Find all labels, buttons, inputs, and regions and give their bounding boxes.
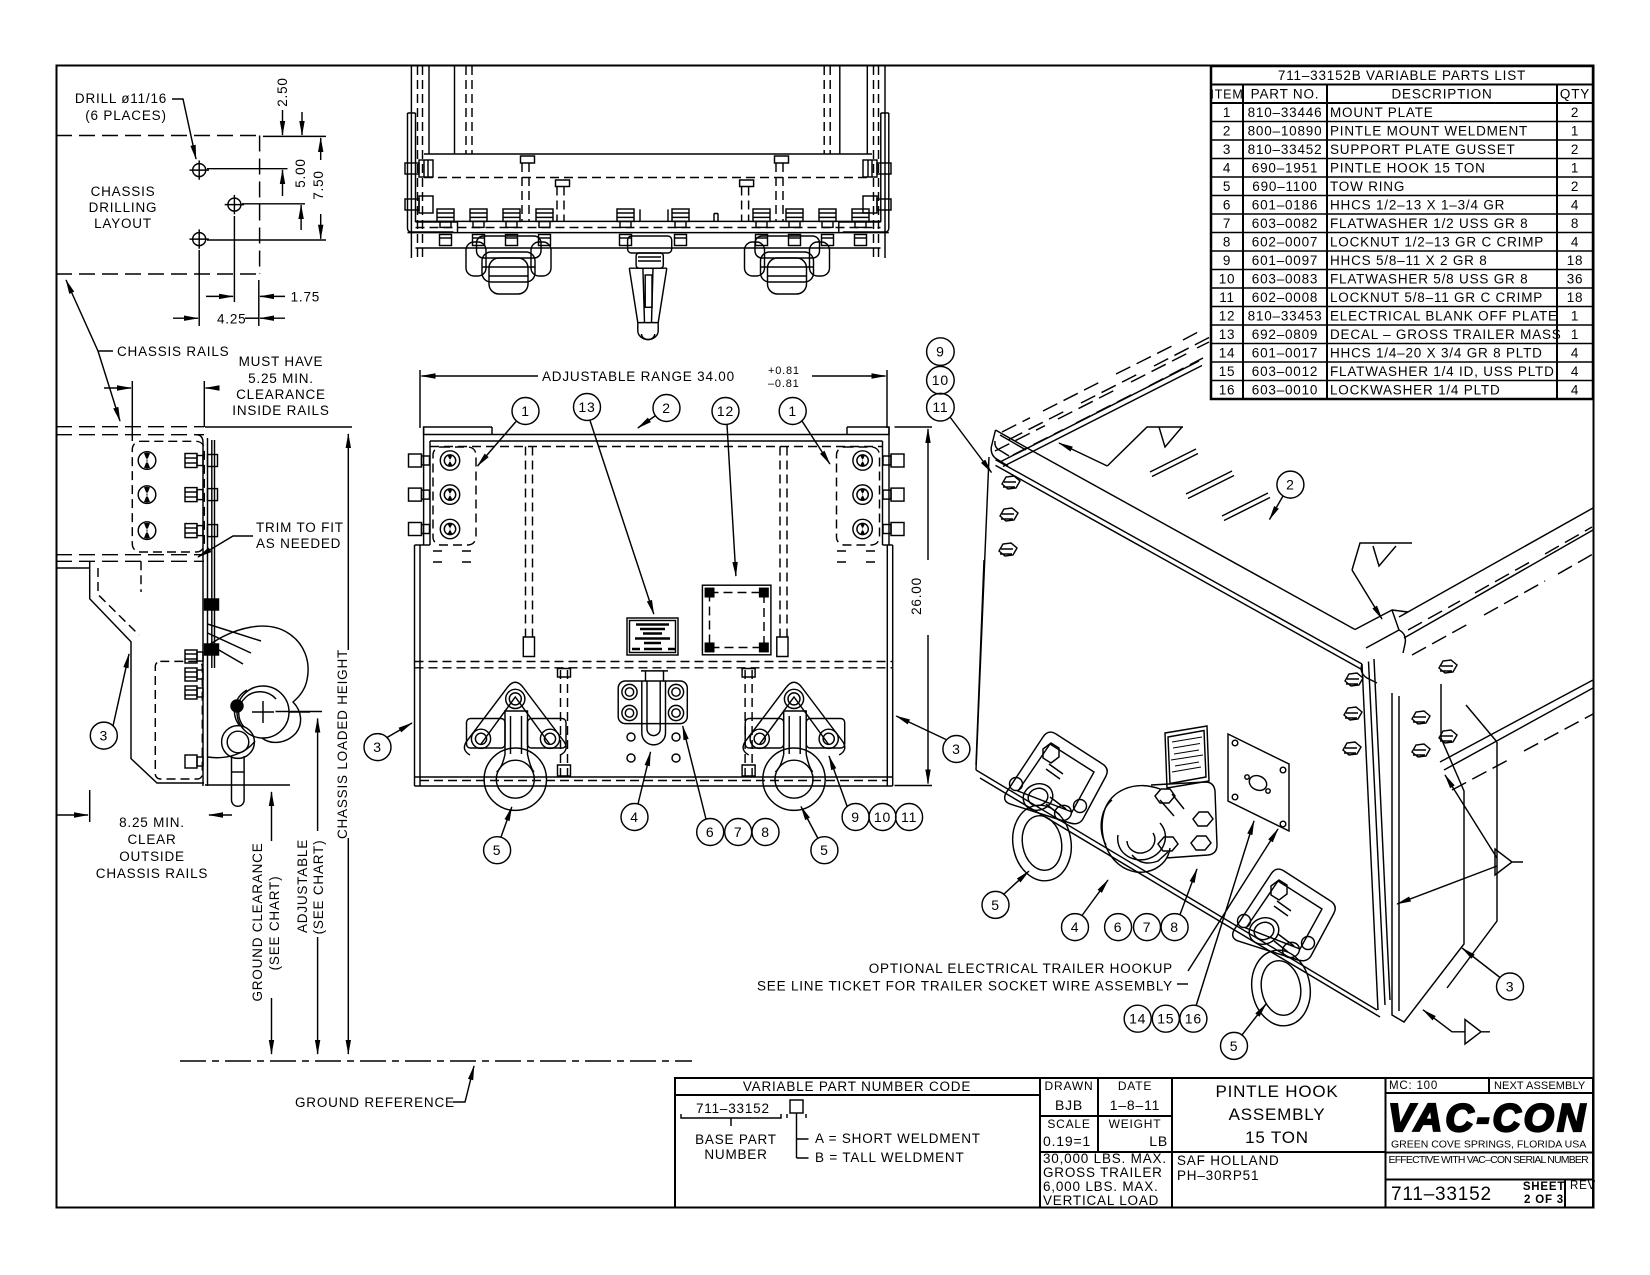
svg-text:6: 6 [706,824,715,840]
svg-text:B = TALL WELDMENT: B = TALL WELDMENT [815,1150,965,1165]
svg-text:2 OF 3: 2 OF 3 [1524,1194,1564,1206]
svg-text:VAC-CON: VAC-CON [1388,1097,1586,1140]
svg-text:14: 14 [1219,346,1236,361]
svg-text:DRILL ø11/16: DRILL ø11/16 [75,91,167,106]
svg-text:16: 16 [1185,1011,1202,1027]
svg-text:1: 1 [1571,309,1579,324]
svg-text:ASSEMBLY: ASSEMBLY [1229,1105,1326,1124]
svg-text:FLATWASHER 1/2 USS GR 8: FLATWASHER 1/2 USS GR 8 [1330,216,1528,231]
svg-text:690–1951: 690–1951 [1252,161,1318,176]
svg-text:810–33453: 810–33453 [1248,309,1323,324]
svg-text:810–33446: 810–33446 [1248,105,1323,120]
svg-text:TRIM TO FIT: TRIM TO FIT [256,520,344,535]
svg-text:4: 4 [1571,235,1579,250]
svg-text:AS NEEDED: AS NEEDED [256,536,341,551]
svg-text:4: 4 [1571,364,1579,379]
svg-text:30,000 LBS. MAX.: 30,000 LBS. MAX. [1043,1151,1167,1166]
svg-text:3: 3 [373,739,382,755]
svg-text:2: 2 [1571,105,1579,120]
svg-text:1–8–11: 1–8–11 [1110,1097,1160,1113]
svg-text:1: 1 [788,403,797,419]
svg-text:5: 5 [1230,1038,1239,1054]
svg-text:LB: LB [1149,1133,1168,1149]
svg-text:8: 8 [1223,235,1231,250]
svg-text:10: 10 [1219,272,1236,287]
svg-text:NUMBER: NUMBER [704,1147,767,1162]
svg-text:ADJUSTABLE: ADJUSTABLE [295,839,310,933]
svg-text:601–0017: 601–0017 [1252,346,1318,361]
svg-text:5.00: 5.00 [293,158,308,187]
svg-text:2: 2 [1286,477,1295,493]
svg-text:8: 8 [1170,919,1179,935]
svg-text:3: 3 [100,728,109,744]
svg-text:10: 10 [932,372,949,388]
svg-text:1: 1 [1571,124,1579,139]
svg-text:13: 13 [1219,327,1236,342]
svg-text:14: 14 [1129,1011,1146,1027]
svg-text:603–0010: 603–0010 [1252,383,1318,398]
svg-text:OPTIONAL ELECTRICAL TRAILER: OPTIONAL ELECTRICAL TRAILER HOOKUP [869,961,1173,976]
svg-text:TOW RING: TOW RING [1330,179,1405,194]
svg-text:SHEET: SHEET [1523,1181,1565,1193]
svg-text:SUPPORT PLATE GUSSET: SUPPORT PLATE GUSSET [1330,142,1516,157]
svg-text:11: 11 [932,399,948,415]
svg-text:4.25: 4.25 [217,312,246,327]
svg-text:WEIGHT: WEIGHT [1109,1117,1162,1131]
svg-text:0.19=1: 0.19=1 [1043,1133,1091,1149]
svg-text:1.75: 1.75 [291,290,320,305]
svg-text:18: 18 [1567,253,1584,268]
svg-text:7: 7 [1223,216,1231,231]
svg-text:601–0097: 601–0097 [1252,253,1318,268]
svg-text:ITEM: ITEM [1210,88,1243,102]
svg-text:LOCKNUT 5/8–11 GR C CRIMP: LOCKNUT 5/8–11 GR C CRIMP [1330,290,1543,305]
svg-text:HHCS 1/4–20 X 3/4 GR 8 P: HHCS 1/4–20 X 3/4 GR 8 PLTD [1330,346,1543,361]
svg-text:(6 PLACES): (6 PLACES) [85,108,167,123]
svg-text:4: 4 [630,809,639,825]
svg-text:12: 12 [717,403,734,419]
svg-text:DRAWN: DRAWN [1045,1079,1094,1093]
svg-text:MC: 100: MC: 100 [1389,1080,1438,1092]
svg-text:PINTLE HOOK 15 TON: PINTLE HOOK 15 TON [1330,161,1486,176]
svg-text:(SEE CHART): (SEE CHART) [267,876,282,971]
svg-text:+0.81: +0.81 [768,365,800,377]
svg-text:BJB: BJB [1055,1097,1083,1113]
svg-text:CHASSIS RAILS: CHASSIS RAILS [96,866,208,881]
svg-text:ADJUSTABLE RANGE 34.00: ADJUSTABLE RANGE 34.00 [542,369,735,384]
svg-text:BASE PART: BASE PART [695,1132,777,1147]
svg-text:2.50: 2.50 [275,77,290,106]
svg-text:DATE: DATE [1118,1079,1152,1093]
svg-text:OUTSIDE: OUTSIDE [119,849,185,864]
svg-text:603–0083: 603–0083 [1252,272,1318,287]
svg-text:CLEARANCE: CLEARANCE [236,387,326,402]
svg-text:CHASSIS: CHASSIS [91,184,156,199]
svg-text:4: 4 [1571,198,1579,213]
svg-text:800–10890: 800–10890 [1248,124,1323,139]
svg-text:11: 11 [901,809,917,825]
svg-text:9: 9 [1223,253,1231,268]
svg-text:LOCKNUT 1/2–13 GR C CRIMP: LOCKNUT 1/2–13 GR C CRIMP [1330,235,1544,250]
svg-text:QTY: QTY [1560,87,1590,102]
svg-text:DECAL – GROSS TRAILER MASS: DECAL – GROSS TRAILER MASS [1330,327,1562,342]
svg-text:A = SHORT WELDMENT: A = SHORT WELDMENT [815,1131,981,1146]
svg-text:10: 10 [874,809,891,825]
svg-text:16: 16 [1219,383,1236,398]
svg-text:8: 8 [761,824,770,840]
svg-text:4: 4 [1071,919,1080,935]
svg-text:DESCRIPTION: DESCRIPTION [1391,87,1492,102]
svg-text:690–1100: 690–1100 [1252,179,1317,194]
svg-text:15: 15 [1219,364,1236,379]
svg-text:9: 9 [851,809,860,825]
svg-text:6: 6 [1114,919,1123,935]
svg-text:15: 15 [1157,1011,1174,1027]
svg-text:INSIDE RAILS: INSIDE RAILS [232,403,329,418]
svg-text:MUST HAVE: MUST HAVE [239,354,324,369]
svg-text:18: 18 [1567,290,1584,305]
svg-text:15 TON: 15 TON [1245,1128,1309,1147]
svg-text:13: 13 [578,399,595,415]
svg-text:PH–30RP51: PH–30RP51 [1177,1168,1259,1183]
svg-text:CHASSIS LOADED HEIGHT: CHASSIS LOADED HEIGHT [335,649,350,839]
svg-text:9: 9 [936,344,945,360]
svg-text:8: 8 [1571,216,1579,231]
svg-text:36: 36 [1567,272,1584,287]
svg-text:5: 5 [820,842,829,858]
svg-text:GROUND CLEARANCE: GROUND CLEARANCE [250,842,265,1001]
svg-text:5: 5 [493,842,502,858]
svg-text:2: 2 [1571,179,1579,194]
svg-text:DRILLING: DRILLING [89,200,158,215]
svg-text:3: 3 [952,741,961,757]
svg-text:7: 7 [734,824,743,840]
svg-text:6: 6 [1223,198,1231,213]
svg-text:4: 4 [1223,161,1231,176]
svg-text:2: 2 [1571,142,1579,157]
svg-text:HHCS 5/8–11 X 2 GR 8: HHCS 5/8–11 X 2 GR 8 [1330,253,1488,268]
svg-text:1: 1 [1223,105,1231,120]
svg-text:711–33152: 711–33152 [696,1101,770,1116]
svg-text:2: 2 [662,400,671,416]
svg-text:HHCS 1/2–13 X 1–3/4 GR: HHCS 1/2–13 X 1–3/4 GR [1330,198,1505,213]
svg-text:3: 3 [1506,979,1515,995]
svg-text:3: 3 [1223,142,1231,157]
svg-text:CHASSIS RAILS: CHASSIS RAILS [117,344,229,359]
svg-text:NEXT ASSEMBLY: NEXT ASSEMBLY [1494,1080,1586,1092]
svg-text:711–33152: 711–33152 [1391,1184,1492,1205]
svg-text:MOUNT PLATE: MOUNT PLATE [1330,105,1434,120]
svg-text:LAYOUT: LAYOUT [94,216,152,231]
svg-text:PART NO.: PART NO. [1251,87,1320,102]
svg-text:11: 11 [1219,290,1235,305]
svg-text:7.50: 7.50 [311,170,326,199]
svg-text:1: 1 [521,403,530,419]
svg-text:ELECTRICAL BLANK OFF PLATE: ELECTRICAL BLANK OFF PLATE [1330,309,1558,324]
svg-text:711–33152B VARIABLE PARTS L: 711–33152B VARIABLE PARTS LIST [1278,68,1526,83]
svg-text:602–0008: 602–0008 [1252,290,1318,305]
svg-text:GROUND REFERENCE: GROUND REFERENCE [295,1095,455,1110]
svg-text:603–0012: 603–0012 [1252,364,1318,379]
svg-text:FLATWASHER 5/8 USS GR 8: FLATWASHER 5/8 USS GR 8 [1330,272,1528,287]
svg-text:810–33452: 810–33452 [1248,142,1323,157]
svg-text:GREEN COVE SPRINGS, FLORIDA US: GREEN COVE SPRINGS, FLORIDA USA [1391,1139,1587,1151]
svg-text:SEE LINE TICKET FOR TRAILE: SEE LINE TICKET FOR TRAILER SOCKET WIRE … [757,979,1173,994]
svg-text:SAF HOLLAND: SAF HOLLAND [1177,1153,1280,1168]
svg-text:5: 5 [991,897,1000,913]
svg-text:692–0809: 692–0809 [1252,327,1318,342]
svg-text:8.25 MIN.: 8.25 MIN. [119,815,185,830]
svg-text:7: 7 [1143,919,1152,935]
svg-text:LOCKWASHER 1/4 PLTD: LOCKWASHER 1/4 PLTD [1330,383,1501,398]
svg-text:1: 1 [1571,327,1579,342]
svg-text:PINTLE MOUNT WELDMENT: PINTLE MOUNT WELDMENT [1330,124,1528,139]
svg-text:1: 1 [1571,161,1579,176]
svg-text:6,000 LBS. MAX.: 6,000 LBS. MAX. [1043,1179,1159,1194]
svg-text:5.25 MIN.: 5.25 MIN. [248,371,314,386]
svg-text:VARIABLE PART NUMBER CODE: VARIABLE PART NUMBER CODE [743,1079,971,1094]
svg-text:4: 4 [1571,346,1579,361]
svg-text:603–0082: 603–0082 [1252,216,1318,231]
svg-text:GROSS TRAILER: GROSS TRAILER [1043,1165,1163,1180]
svg-text:(SEE CHART): (SEE CHART) [311,840,326,935]
svg-text:2: 2 [1223,124,1231,139]
svg-text:CLEAR: CLEAR [127,832,176,847]
svg-text:SCALE: SCALE [1047,1117,1090,1131]
svg-text:–0.81: –0.81 [768,378,800,390]
svg-text:26.00: 26.00 [909,577,924,615]
svg-text:VERTICAL LOAD: VERTICAL LOAD [1043,1193,1159,1208]
svg-text:PINTLE HOOK: PINTLE HOOK [1215,1082,1338,1101]
svg-text:602–0007: 602–0007 [1252,235,1318,250]
svg-text:REV: REV [1570,1180,1596,1192]
svg-text:5: 5 [1223,179,1231,194]
svg-text:EFFECTIVE WITH VAC–CON SERIAL: EFFECTIVE WITH VAC–CON SERIAL NUMBER [1389,1154,1590,1166]
svg-text:FLATWASHER 1/4 ID, USS PLT: FLATWASHER 1/4 ID, USS PLTD [1330,364,1555,379]
svg-text:601–0186: 601–0186 [1252,198,1318,213]
svg-text:4: 4 [1571,383,1579,398]
svg-text:12: 12 [1219,309,1236,324]
